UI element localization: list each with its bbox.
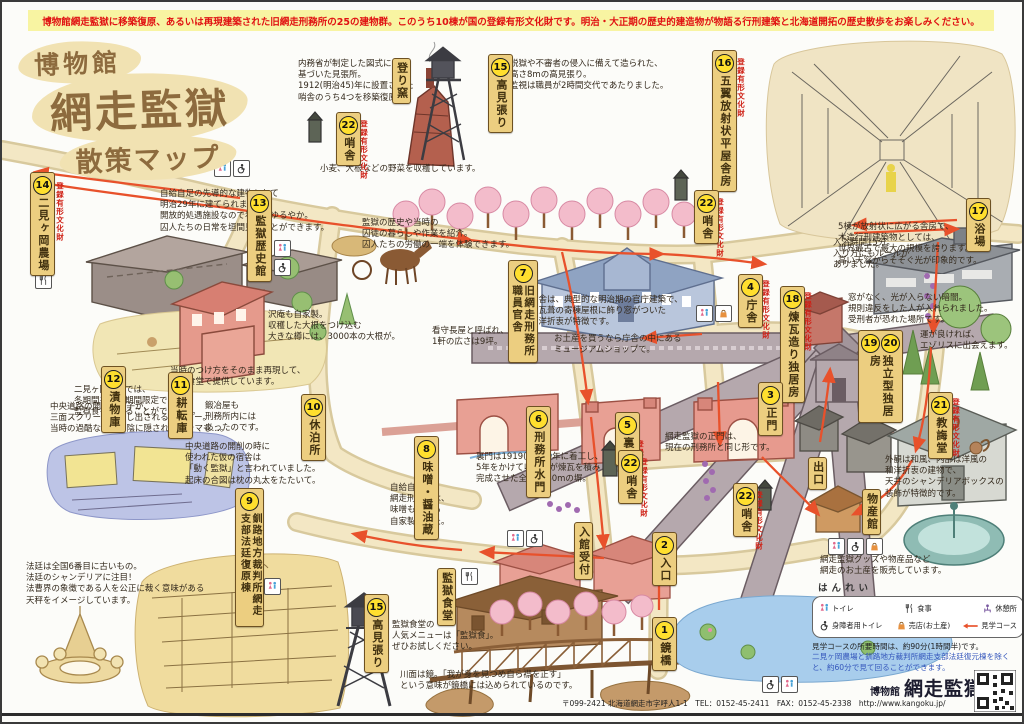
heritage-tag: 登録有形文化財 <box>952 398 960 458</box>
shop-icon <box>896 620 907 631</box>
facility-label: 入館受付 <box>577 526 590 576</box>
location-number: 8 <box>417 440 436 459</box>
location-number: 19 <box>861 334 880 353</box>
wheelchair-icon <box>819 620 830 631</box>
location-label: 漬物庫 <box>107 391 120 429</box>
facility-label: 監獄食堂 <box>440 572 453 622</box>
note-guard-rowhouse: 看守長屋と呼ばれ、 1軒の広さは9坪。 <box>432 326 509 348</box>
location-label: 煉瓦造り独居房 <box>786 311 799 399</box>
wheelchair-icon <box>526 530 543 547</box>
location-number: 4 <box>741 278 760 297</box>
location-label: 哨舎 <box>342 137 355 162</box>
sign-bussankan: 物産館 <box>862 489 881 535</box>
icons-wheelchair-toilet <box>762 676 798 693</box>
note-squirrels: 運が良ければ、 エゾリスに出会えます。 <box>920 330 1013 352</box>
sign-19-20-independent-cells: 19 20 独立型独居房 <box>858 330 903 423</box>
sign-17-bathhouse: 17 浴場 <box>966 198 991 252</box>
location-label: 浴場 <box>972 223 985 248</box>
sign-16-radial-cellblock: 16 五翼放射状平屋舎房 <box>712 50 737 192</box>
heritage-tag: 登録有形文化財 <box>737 58 745 118</box>
location-label: 入口 <box>658 557 671 582</box>
note-courtroom: 法廷は全国6番目に古いもの。 法廷のシャンデリアに注目！ 法曹界の象徴である人を… <box>26 562 204 607</box>
note-administration: 庁舎は、典型的な明治期の官庁建築で、 総瓦葺の寄棟屋根に飾り窓がついた 和洋折衷… <box>530 295 683 329</box>
sign-22-sentry-box-c: 22 哨舎 <box>618 450 643 504</box>
location-label: 正門 <box>764 407 777 432</box>
location-label: 鏡橋 <box>658 642 671 667</box>
sign-climbing-kiln: 登り窯 <box>392 58 411 104</box>
sign-2-entrance: 2 入口 <box>652 532 677 586</box>
location-number: 3 <box>761 386 780 405</box>
location-label: 休泊所 <box>307 419 320 457</box>
sign-4-administration-building: 4 庁舎 <box>738 274 763 328</box>
restaurant-icon <box>904 603 915 614</box>
location-label: 旧網走刑務所職員官舎 <box>511 285 535 359</box>
location-number: 12 <box>104 370 123 389</box>
location-label: 五翼放射状平屋舎房 <box>718 75 731 188</box>
location-number: 9 <box>240 492 259 511</box>
shop-icon <box>866 538 883 555</box>
note-bussankan: 網走監獄グッズや物産品など 網走のお土産を販売しています。 <box>820 555 946 577</box>
location-number: 1 <box>655 621 674 640</box>
location-label: 監獄歴史館 <box>253 215 266 278</box>
location-number: 16 <box>715 54 734 73</box>
museum-logo: 博物館 網走監獄 <box>870 674 984 701</box>
heritage-tag: 登録有形文化財 <box>762 280 770 340</box>
sign-21-kyokaido: 21 教誨堂 <box>928 392 953 459</box>
restaurant-icon <box>461 568 478 585</box>
icons-toilet-wheelchair <box>274 240 291 276</box>
sign-22-sentry-box-b: 22 哨舎 <box>694 190 719 244</box>
location-number: 21 <box>931 396 950 415</box>
location-number: 22 <box>697 194 716 213</box>
legend-course-time: 見学コースの所要時間は、約90分(1時間半)です。 <box>812 642 1024 652</box>
map-title: 博物館 網走監獄 散策マップ <box>9 32 344 193</box>
location-label: 哨舎 <box>739 508 752 533</box>
sign-22-sentry-box-d: 22 哨舎 <box>733 483 758 537</box>
sign-15-watchtower-bottom: 15 高見張り <box>364 594 389 673</box>
location-label: 独立型独居房 <box>868 355 893 419</box>
legend-item-course: 見学コース <box>963 621 1017 631</box>
wheelchair-icon <box>847 538 864 555</box>
sign-18-brick-solitary-cell: 18 煉瓦造り独居房 <box>780 286 805 403</box>
sign-10-rest-lodge: 10 休泊所 <box>301 394 326 461</box>
sign-prison-canteen: 監獄食堂 <box>437 568 456 626</box>
toilet-icon <box>274 240 291 257</box>
sign-12-pickle-storehouse: 12 漬物庫 <box>101 366 126 433</box>
note-history-museum: 監獄の歴史や当時の 囚徒の暮らしや作業を紹介。 囚人たちの労働の一端を体験できま… <box>362 218 514 252</box>
sign-exit: 出口 <box>808 457 827 490</box>
note-theater: 中央道路の開削の様子が、 三面スクリーンに映し出されるシアター。 当時の過酷な労… <box>50 402 229 436</box>
location-number: 20 <box>881 334 900 353</box>
toilet-icon <box>819 603 830 614</box>
location-number: 7 <box>514 264 533 283</box>
legend-item-toilet: トイレ <box>819 603 854 614</box>
address-line: 〒099-2421 北海道網走市字呼人1-1 TEL：0152-45-2411 … <box>562 698 946 709</box>
course-arrow-icon <box>963 621 979 631</box>
sign-admission-reception: 入館受付 <box>574 522 593 580</box>
scan-edge-line <box>2 713 1022 716</box>
location-label: 二見ヶ岡農場 <box>36 197 49 272</box>
legend-item-shop: 売店(お土産) <box>896 620 951 631</box>
location-label: 庁舎 <box>744 299 757 324</box>
location-label: 高見張り <box>370 619 383 669</box>
sign-13-prison-history-museum: 13 監獄歴史館 <box>247 190 272 282</box>
heritage-tag: 登録有形文化財 <box>804 292 812 352</box>
legend-item-rest-area: 休憩所 <box>982 603 1017 614</box>
location-label: 哨舎 <box>700 215 713 240</box>
toilet-icon <box>781 676 798 693</box>
note-watchtower: 脱獄や不審者の侵入に備えて造られた、 高さ8mの高見張り。 監視は職員が2時間交… <box>510 59 668 93</box>
wheelchair-icon <box>762 676 779 693</box>
location-number: 2 <box>655 536 674 555</box>
facility-label: 出口 <box>811 461 824 486</box>
logo-main-text: 網走監獄 <box>904 674 984 701</box>
note-farm: 自給自足の先導的な建物として 明治29年に建てられました。 開放的処遇施設なので… <box>160 189 329 234</box>
icons-restaurant <box>461 568 478 585</box>
toilet-icon <box>507 530 524 547</box>
location-label: 教誨堂 <box>934 417 947 455</box>
note-bathhouse: 入浴時間15分。 入り方にもルールが ありました。 <box>833 238 910 272</box>
sign-9-courtroom-restoration: 9 釧路地方裁判所網走支部法廷復原棟 <box>235 488 264 627</box>
location-number: 5 <box>618 416 637 435</box>
location-number: 17 <box>969 202 988 221</box>
legend-item-accessible-toilet: 身障者用トイレ <box>819 620 882 631</box>
location-label: 刑務所水門 <box>532 431 545 494</box>
location-numbers: 19 20 <box>861 334 900 353</box>
location-label: 耕転庫 <box>174 397 187 435</box>
logo-small-text: 博物館 <box>870 683 900 698</box>
location-label: 釧路地方裁判所網走支部法廷復原棟 <box>238 513 261 623</box>
location-number: 11 <box>171 376 190 395</box>
toilet-icon <box>828 538 845 555</box>
abashiri-prison-walking-map: 博物館網走監獄に移築復原、あるいは再現建築された旧網走刑務所の25の建物群。この… <box>0 0 1024 724</box>
note-museum-shop: お土産を買うなら庁舎の中にある ミュージアムショップで。 <box>554 334 682 356</box>
toilet-icon <box>264 578 281 595</box>
sign-8-miso-soy-warehouse: 8 味噌・醤油蔵 <box>414 436 439 540</box>
sign-11-tiller-shed: 11 耕転庫 <box>168 372 193 439</box>
location-label: 哨舎 <box>624 475 637 500</box>
chandelier-sketch <box>36 606 123 683</box>
location-number: 22 <box>736 487 755 506</box>
icons-toilet-wheelchair <box>507 530 543 547</box>
location-label: 高見張り <box>494 79 507 129</box>
location-number: 15 <box>491 58 510 77</box>
legend-title: はんれい <box>818 580 1024 594</box>
location-number: 6 <box>529 410 548 429</box>
top-banner: 博物館網走監獄に移築復原、あるいは再現建築された旧網走刑務所の25の建物群。この… <box>28 10 994 31</box>
note-kyokaido: 外観は和風、内部は洋風の 和洋折衷の建物で、 天井のシャンデリアボックスの 装飾… <box>885 455 1004 500</box>
location-label: 味噌・醤油蔵 <box>420 461 433 536</box>
icons-toilet <box>264 578 281 595</box>
sign-7-staff-quarters: 7 旧網走刑務所職員官舎 <box>508 260 538 363</box>
rest-area-icon <box>982 603 993 614</box>
facility-label: 登り窯 <box>395 62 408 100</box>
location-number: 15 <box>367 598 386 617</box>
legend-item-meal: 食事 <box>904 603 931 614</box>
sign-3-main-gate: 3 正門 <box>758 382 783 436</box>
facility-label: 物産館 <box>865 493 878 531</box>
sign-15-watchtower-top: 15 高見張り <box>488 54 513 133</box>
note-pickles: 沢庵も自家製。 収穫した大根をつけ込む 大きな樽には、3000本の大根が。 <box>268 310 400 344</box>
location-number: 10 <box>304 398 323 417</box>
sign-6-prison-water-gate: 6 刑務所水門 <box>526 406 551 498</box>
legend-box: トイレ 食事 休憩所 身障者用トイレ 売店(お土産) 見学コース <box>812 596 1024 638</box>
sign-1-kagami-bridge: 1 鏡橋 <box>652 617 677 671</box>
icons-toilet-wheelchair-shop <box>828 538 883 555</box>
location-number: 18 <box>783 290 802 309</box>
note-kagami-bridge: 川面は鏡。「我が身を見つめ自ら襟を正す」 という意味が鏡橋には込められているので… <box>400 670 577 692</box>
icons-toilet-shop <box>696 305 732 322</box>
heritage-tag: 登録有形文化財 <box>360 120 368 180</box>
banner-text: 博物館網走監獄に移築復原、あるいは再現建築された旧網走刑務所の25の建物群。この… <box>42 14 980 28</box>
note-dark-cells: 窓がなく、光が入らない暗闇。 規則違反をした人が入れられました。 受刑者が恐れた… <box>848 293 993 327</box>
location-number: 13 <box>250 194 269 213</box>
legend: はんれい トイレ 食事 休憩所 身障者用トイレ 売店(お土産) 見学コース 見学… <box>812 580 1024 673</box>
location-number: 22 <box>621 454 640 473</box>
shop-icon <box>715 305 732 322</box>
wheelchair-icon <box>274 259 291 276</box>
toilet-icon <box>696 305 713 322</box>
qr-code <box>974 670 1016 712</box>
